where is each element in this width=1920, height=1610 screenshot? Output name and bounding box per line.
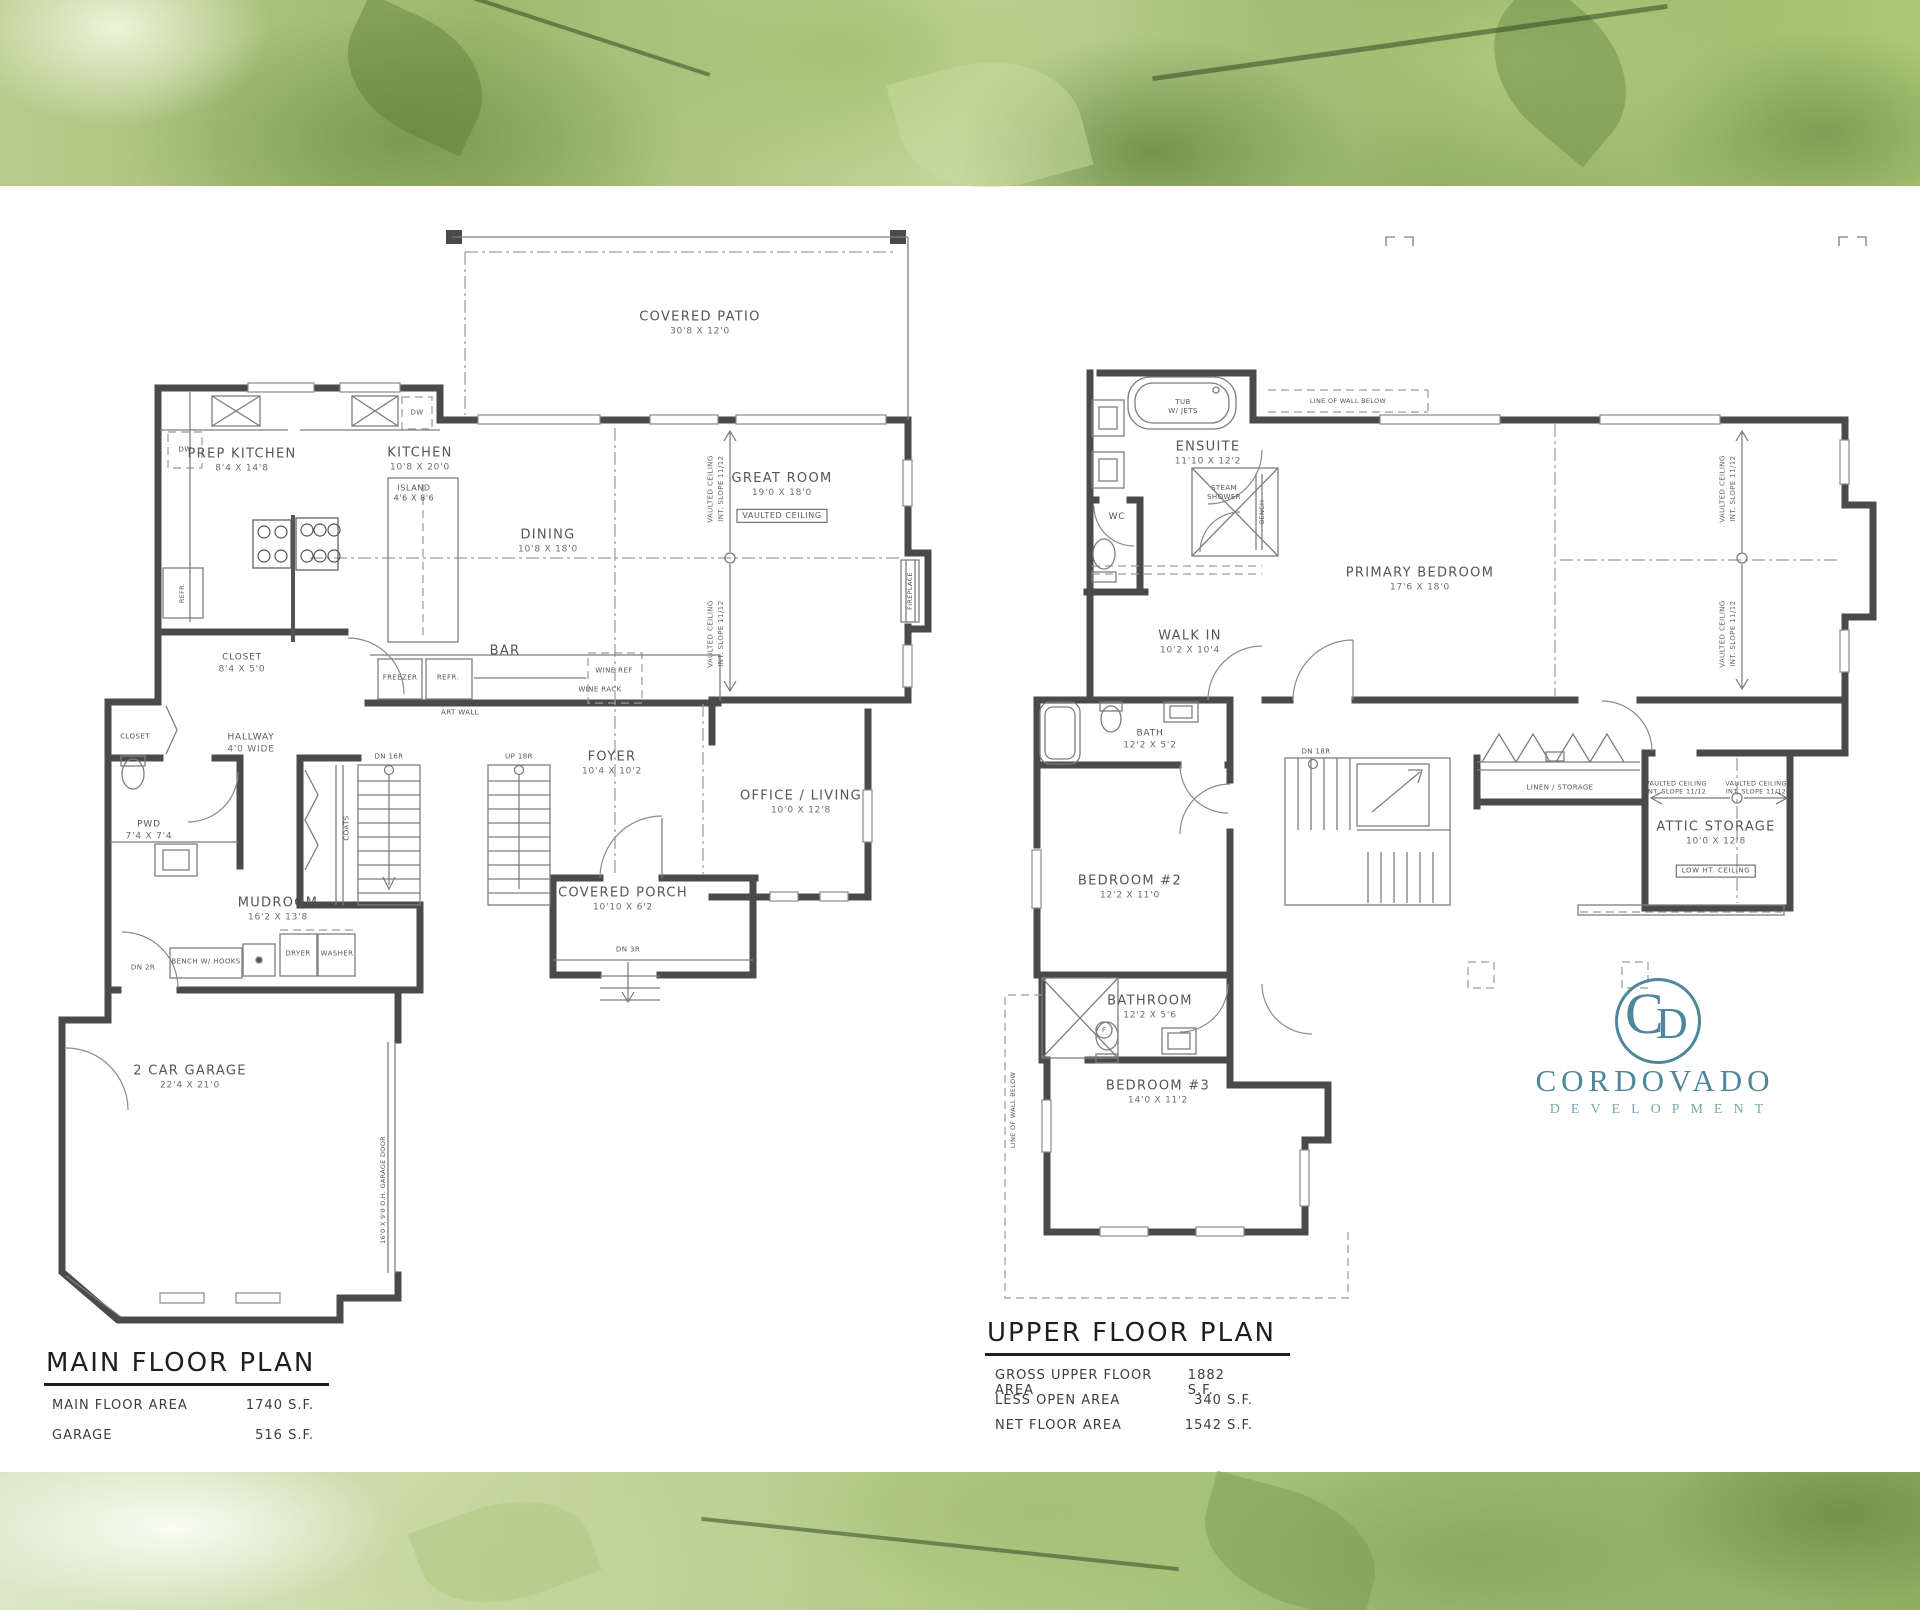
washer-label: WASHER: [321, 949, 354, 958]
fireplace-label: FIREPLACE: [906, 572, 914, 610]
text: WASHER: [321, 949, 354, 958]
stat-value: 516 S.F.: [255, 1428, 314, 1443]
logo-monogram-d: D: [1656, 998, 1688, 1049]
dn18r-label: DN 18R: [1301, 747, 1330, 756]
wine-rack-label: WINE RACK: [578, 685, 621, 694]
room-name: CLOSET: [120, 732, 150, 741]
dryer-label: DRYER: [285, 949, 310, 958]
room-label-wc: WC: [1109, 512, 1126, 524]
text: LINE OF WALL BELOW: [1009, 1072, 1017, 1148]
room-dims: 19'0 X 18'0: [732, 488, 833, 500]
room-label-foyer: FOYER 10'4 X 10'2: [582, 750, 642, 779]
text: VAULTED CEILING: [1718, 455, 1729, 523]
vaulted-slope-label: VAULTED CEILING INT. SLOPE 11/12: [1718, 455, 1739, 523]
low-ht-ceiling-tag: LOW HT. CEILING: [1676, 858, 1756, 879]
cooktop: [253, 515, 340, 642]
vaulted-slope-label: VAULTED CEILING INT. SLOPE 11/12: [1718, 600, 1739, 668]
room-name: BAR: [490, 644, 521, 661]
room-name: PREP KITCHEN: [188, 447, 297, 464]
text: INT. SLOPE 11/12: [716, 455, 727, 523]
text: VAULTED CEILING: [706, 455, 717, 523]
text: REFR.: [178, 583, 186, 603]
text: LINE OF WALL BELOW: [1310, 397, 1386, 405]
text: LINEN / STORAGE: [1527, 783, 1594, 792]
room-label-covered-patio: COVERED PATIO 30'8 X 12'0: [639, 310, 760, 339]
wine-ref-label: WINE REF: [595, 666, 632, 675]
text: ART WALL: [441, 708, 479, 717]
room-name: OFFICE / LIVING: [740, 789, 862, 806]
room-label-great-room: GREAT ROOM 19'0 X 18'0 VAULTED CEILING: [732, 471, 833, 523]
room-name: GREAT ROOM: [732, 471, 833, 488]
prep-refr-label: REFR.: [178, 583, 186, 603]
room-dims: 10'4 X 10'2: [582, 767, 642, 779]
thin-linework: [66, 237, 1866, 1317]
room-label-walk-in: WALK IN 10'2 X 10'4: [1158, 629, 1222, 658]
room-dims: 11'10 X 12'2: [1175, 457, 1242, 469]
room-name: HALLWAY: [227, 732, 274, 744]
text: FIREPLACE: [906, 572, 914, 610]
vaulted-ceiling-tag: VAULTED CEILING: [736, 508, 827, 522]
main-stat-row: MAIN FLOOR AREA 1740 S.F.: [52, 1398, 314, 1413]
f-mark: F: [1102, 1026, 1106, 1034]
stat-label: NET FLOOR AREA: [995, 1418, 1122, 1433]
text: DN 2R: [131, 963, 155, 972]
room-label-attic-storage: ATTIC STORAGE 10'0 X 12'8: [1656, 820, 1775, 849]
text: STEAM: [1207, 484, 1241, 493]
bench-label: BENCH: [1258, 500, 1266, 524]
text: INT. SLOPE 11/12: [1645, 788, 1707, 796]
room-label-closet-small: CLOSET: [120, 732, 150, 741]
vaulted-slope-label: VAULTED CEILING INT. SLOPE 11/12: [706, 455, 727, 523]
stat-label: GARAGE: [52, 1428, 112, 1443]
logo-name: CORDOVADO: [1535, 1063, 1774, 1099]
room-label-bedroom2: BEDROOM #2 12'2 X 11'0: [1078, 874, 1182, 903]
stat-value: 340 S.F.: [1194, 1393, 1253, 1408]
room-dims: 12'2 X 5'2: [1123, 740, 1176, 752]
text: INT. SLOPE 11/12: [1728, 455, 1739, 523]
room-name: KITCHEN: [387, 446, 452, 463]
room-name: CLOSET: [219, 652, 266, 664]
text: VAULTED CEILING: [1645, 780, 1707, 788]
dw-label: DW: [178, 445, 191, 454]
stat-label: LESS OPEN AREA: [995, 1393, 1120, 1408]
text: DN 16R: [374, 752, 403, 761]
room-label-mudroom: MUDROOM 16'2 X 13'8: [238, 896, 319, 925]
room-name: ENSUITE: [1175, 440, 1242, 457]
room-name: BEDROOM #3: [1106, 1079, 1210, 1096]
room-name: WC: [1109, 512, 1126, 524]
room-label-bedroom3: BEDROOM #3 14'0 X 11'2: [1106, 1079, 1210, 1108]
room-label-bathroom: BATHROOM 12'2 X 5'6: [1107, 994, 1193, 1023]
dn3r-label: DN 3R: [616, 945, 640, 954]
dimension-lines: [383, 431, 1787, 1002]
room-label-ensuite: ENSUITE 11'10 X 12'2: [1175, 440, 1242, 469]
upper-stat-row: NET FLOOR AREA 1542 S.F.: [995, 1418, 1253, 1433]
room-dims: 4'0 WIDE: [227, 744, 274, 756]
main-floor-plan-title: MAIN FLOOR PLAN: [44, 1348, 329, 1386]
text: VAULTED CEILING: [1718, 600, 1729, 668]
refr-label: REFR.: [437, 673, 459, 682]
room-name: 2 CAR GARAGE: [133, 1064, 247, 1081]
text: BENCH: [1258, 500, 1266, 524]
room-dims: 10'10 X 6'2: [558, 903, 688, 915]
room-name: PRIMARY BEDROOM: [1346, 566, 1494, 583]
room-label-hallway: HALLWAY 4'0 WIDE: [227, 732, 274, 755]
tub-label: TUB W/ JETS: [1168, 398, 1198, 416]
room-label-prep-kitchen: PREP KITCHEN 8'4 X 14'8: [188, 447, 297, 476]
room-label-garage: 2 CAR GARAGE 22'4 X 21'0: [133, 1064, 247, 1093]
text: VAULTED CEILING: [706, 600, 717, 668]
room-dims: 4'6 X 8'6: [394, 494, 435, 504]
text: DN 3R: [616, 945, 640, 954]
garage-door-label: 16'0 X 9'0 O.H. GARAGE DOOR: [379, 1136, 387, 1244]
room-name: COVERED PATIO: [639, 310, 760, 327]
room-label-covered-porch: COVERED PORCH 10'10 X 6'2: [558, 886, 688, 915]
room-label-office-living: OFFICE / LIVING 10'0 X 12'8: [740, 789, 862, 818]
room-dims: 17'6 X 18'0: [1346, 583, 1494, 595]
dashed-lines: [168, 390, 1782, 1298]
room-label-pwd: PWD 7'4 X 7'4: [126, 819, 173, 842]
stat-label: MAIN FLOOR AREA: [52, 1398, 188, 1413]
dn16r-label: DN 16R: [374, 752, 403, 761]
room-dims: 16'2 X 13'8: [238, 913, 319, 925]
text: VAULTED CEILING: [1725, 780, 1787, 788]
text: F: [1102, 1026, 1106, 1034]
room-dims: 12'2 X 5'6: [1107, 1011, 1193, 1023]
room-name: DINING: [518, 528, 578, 545]
dw-label: DW: [410, 408, 423, 417]
room-label-bar: BAR: [490, 644, 521, 661]
coats-label: COATS: [342, 815, 351, 840]
room-dims: 30'8 X 12'0: [639, 327, 760, 339]
room-dims: 10'0 X 12'8: [740, 806, 862, 818]
room-label-island: ISLAND 4'6 X 8'6: [394, 484, 435, 505]
steam-shower-label: STEAM SHOWER: [1207, 484, 1241, 502]
text: REFR.: [437, 673, 459, 682]
text: INT. SLOPE 11/12: [1725, 788, 1787, 796]
vaulted-slope-label: VAULTED CEILING INT. SLOPE 11/12: [1645, 780, 1707, 797]
room-dims: 10'2 X 10'4: [1158, 646, 1222, 658]
up18r-label: UP 18R: [505, 752, 533, 761]
room-name: FOYER: [582, 750, 642, 767]
room-dims: 12'2 X 11'0: [1078, 891, 1182, 903]
room-name: ISLAND: [394, 484, 435, 494]
text: SHOWER: [1207, 493, 1241, 502]
text: BENCH W/ HOOKS: [171, 957, 240, 966]
text: DW: [410, 408, 423, 417]
vaulted-slope-label: VAULTED CEILING INT. SLOPE 11/12: [706, 600, 727, 668]
text: INT. SLOPE 11/12: [1728, 600, 1739, 668]
text: DRYER: [285, 949, 310, 958]
room-name: MUDROOM: [238, 896, 319, 913]
text: WINE RACK: [578, 685, 621, 694]
text: DN 18R: [1301, 747, 1330, 756]
text: TUB: [1168, 398, 1198, 407]
vaulted-slope-label: VAULTED CEILING INT. SLOPE 11/12: [1725, 780, 1787, 797]
room-name: PWD: [126, 819, 173, 831]
room-dims: 10'0 X 12'8: [1656, 837, 1775, 849]
room-label-dining: DINING 10'8 X 18'0: [518, 528, 578, 557]
room-dims: 8'4 X 14'8: [188, 464, 297, 476]
door-arcs: [66, 450, 1652, 1110]
room-name: BATHROOM: [1107, 994, 1193, 1011]
room-name: WALK IN: [1158, 629, 1222, 646]
text: W/ JETS: [1168, 407, 1198, 416]
bench-label: BENCH W/ HOOKS: [171, 957, 240, 966]
text: COATS: [342, 815, 351, 840]
text: LOW HT. CEILING: [1676, 865, 1756, 878]
room-name: BATH: [1123, 728, 1176, 740]
stat-value: 1542 S.F.: [1185, 1418, 1253, 1433]
room-label-kitchen: KITCHEN 10'8 X 20'0: [387, 446, 452, 475]
windows: [160, 383, 1849, 1303]
line-of-wall-below-label: LINE OF WALL BELOW: [1310, 397, 1386, 405]
stat-value: 1740 S.F.: [246, 1398, 314, 1413]
room-label-bath: BATH 12'2 X 5'2: [1123, 728, 1176, 751]
line-of-wall-below-label: LINE OF WALL BELOW: [1009, 1072, 1017, 1148]
room-label-closet: CLOSET 8'4 X 5'0: [219, 652, 266, 675]
text: WINE REF: [595, 666, 632, 675]
room-dims: 7'4 X 7'4: [126, 831, 173, 843]
room-dims: 22'4 X 21'0: [133, 1081, 247, 1093]
upper-floor-plan-title: UPPER FLOOR PLAN: [985, 1318, 1290, 1356]
main-stat-row: GARAGE 516 S.F.: [52, 1428, 314, 1443]
text: UP 18R: [505, 752, 533, 761]
text: 16'0 X 9'0 O.H. GARAGE DOOR: [379, 1136, 387, 1244]
floor-plan-sheet: COVERED PATIO 30'8 X 12'0 PREP KITCHEN 8…: [0, 0, 1920, 1610]
room-name: BEDROOM #2: [1078, 874, 1182, 891]
room-dims: 10'8 X 20'0: [387, 463, 452, 475]
linen-storage-label: LINEN / STORAGE: [1527, 783, 1594, 792]
room-name: COVERED PORCH: [558, 886, 688, 903]
room-dims: 10'8 X 18'0: [518, 545, 578, 557]
art-wall-label: ART WALL: [441, 708, 479, 717]
logo-subtitle: DEVELOPMENT: [1550, 1102, 1774, 1118]
dn2r-label: DN 2R: [131, 963, 155, 972]
upper-stat-row: LESS OPEN AREA 340 S.F.: [995, 1393, 1253, 1408]
text: INT. SLOPE 11/12: [716, 600, 727, 668]
text: DW: [178, 445, 191, 454]
text: FREEZER: [383, 673, 418, 682]
room-label-primary-bedroom: PRIMARY BEDROOM 17'6 X 18'0: [1346, 566, 1494, 595]
room-dims: 14'0 X 11'2: [1106, 1096, 1210, 1108]
freezer-label: FREEZER: [383, 673, 418, 682]
main-floor-walls: [62, 388, 928, 1320]
room-name: ATTIC STORAGE: [1656, 820, 1775, 837]
room-dims: 8'4 X 5'0: [219, 664, 266, 676]
